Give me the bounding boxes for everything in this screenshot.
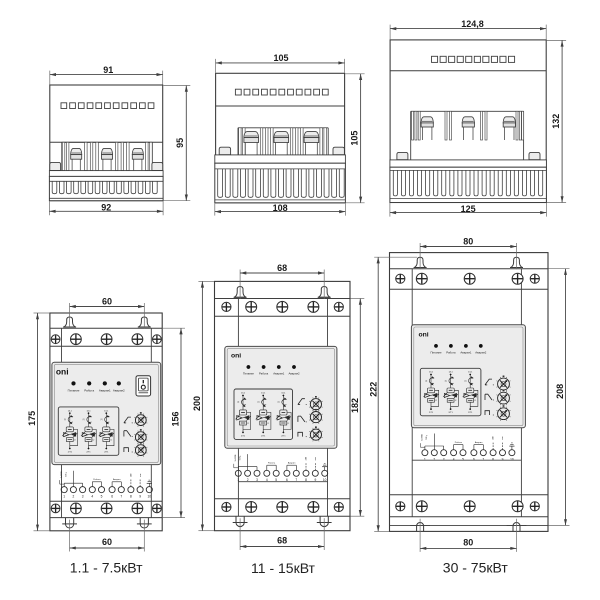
- svg-text:4: 4: [453, 458, 455, 462]
- svg-text:222: 222: [369, 382, 379, 397]
- svg-text:3: 3: [443, 458, 445, 462]
- svg-text:91: 91: [103, 65, 113, 75]
- svg-text:60: 60: [102, 296, 112, 306]
- svg-text:5: 5: [101, 494, 103, 498]
- svg-text:92: 92: [101, 202, 111, 212]
- svg-text:3: 3: [82, 494, 84, 498]
- svg-text:3x380В: 3x380В: [61, 471, 63, 478]
- svg-text:105: 105: [273, 53, 288, 63]
- svg-text:Питание: Питание: [68, 388, 80, 392]
- svg-text:Работа: Работа: [455, 442, 463, 444]
- svg-text:6: 6: [473, 458, 475, 462]
- svg-text:200: 200: [192, 396, 202, 411]
- svg-text:125: 125: [461, 204, 476, 214]
- svg-text:7: 7: [482, 458, 484, 462]
- svg-text:2: 2: [433, 458, 435, 462]
- svg-text:oni: oni: [56, 366, 69, 376]
- svg-text:Авария2: Авария2: [475, 350, 487, 354]
- svg-text:вых: вых: [502, 436, 504, 439]
- svg-text:7: 7: [120, 494, 122, 498]
- svg-text:Авария2: Авария2: [113, 388, 125, 392]
- svg-text:Авария1: Авария1: [99, 388, 111, 392]
- svg-text:oni: oni: [418, 332, 428, 339]
- svg-text:68: 68: [277, 535, 287, 545]
- svg-text:Работа: Работа: [93, 479, 101, 481]
- svg-text:3x380В: 3x380В: [422, 433, 424, 440]
- svg-text:2: 2: [73, 494, 75, 498]
- svg-text:6: 6: [111, 494, 113, 498]
- svg-text:10: 10: [510, 458, 514, 462]
- svg-text:30 - 75кВт: 30 - 75кВт: [443, 559, 509, 575]
- svg-text:Работа: Работа: [268, 462, 276, 464]
- svg-text:Авария2: Авария2: [288, 371, 300, 375]
- svg-text:вых: вых: [140, 474, 142, 477]
- svg-text:Питание: Питание: [243, 371, 254, 375]
- svg-text:60: 60: [102, 537, 112, 547]
- svg-text:Работа: Работа: [446, 350, 456, 354]
- svg-text:4: 4: [91, 494, 93, 498]
- svg-text:Питание: Питание: [430, 350, 441, 354]
- svg-text:10: 10: [148, 494, 152, 498]
- svg-text:вых: вых: [315, 457, 317, 460]
- svg-text:124,8: 124,8: [461, 19, 484, 29]
- svg-text:208: 208: [555, 384, 565, 399]
- svg-text:175: 175: [27, 411, 37, 426]
- svg-text:156: 156: [171, 411, 181, 426]
- svg-text:1: 1: [63, 494, 65, 498]
- svg-text:80: 80: [463, 236, 473, 246]
- svg-text:11 - 15кВт: 11 - 15кВт: [251, 560, 316, 576]
- svg-text:oni: oni: [231, 353, 241, 360]
- svg-text:80: 80: [463, 537, 473, 547]
- svg-text:Авария1: Авария1: [460, 350, 472, 354]
- svg-text:5: 5: [462, 458, 464, 462]
- svg-text:132: 132: [551, 114, 561, 129]
- svg-text:Авария1: Авария1: [273, 371, 285, 375]
- svg-text:8: 8: [492, 458, 494, 462]
- svg-text:8: 8: [130, 494, 132, 498]
- svg-text:9: 9: [502, 458, 504, 462]
- svg-text:9: 9: [139, 494, 141, 498]
- svg-text:Работа: Работа: [259, 371, 269, 375]
- svg-text:1: 1: [424, 458, 426, 462]
- svg-text:3x380В: 3x380В: [235, 454, 237, 461]
- svg-text:105: 105: [350, 131, 360, 146]
- svg-text:108: 108: [273, 203, 288, 213]
- svg-text:68: 68: [277, 263, 287, 273]
- svg-text:182: 182: [350, 398, 360, 413]
- svg-text:1.1 - 7.5кВт: 1.1 - 7.5кВт: [70, 559, 143, 575]
- svg-text:95: 95: [175, 138, 185, 148]
- svg-text:Работа: Работа: [84, 388, 94, 392]
